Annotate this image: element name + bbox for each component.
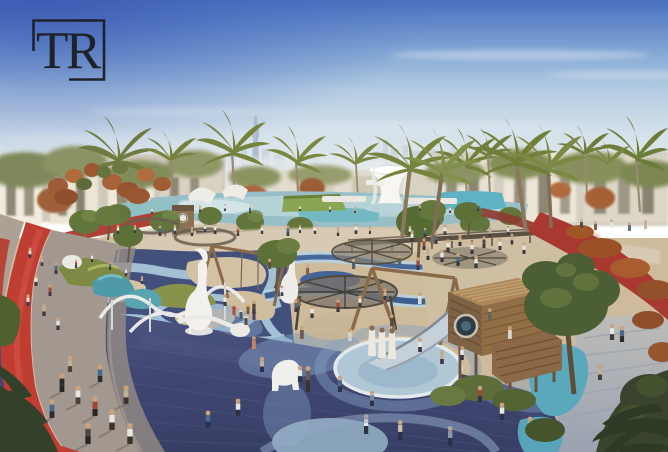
svg-text:TR: TR [36,22,102,80]
